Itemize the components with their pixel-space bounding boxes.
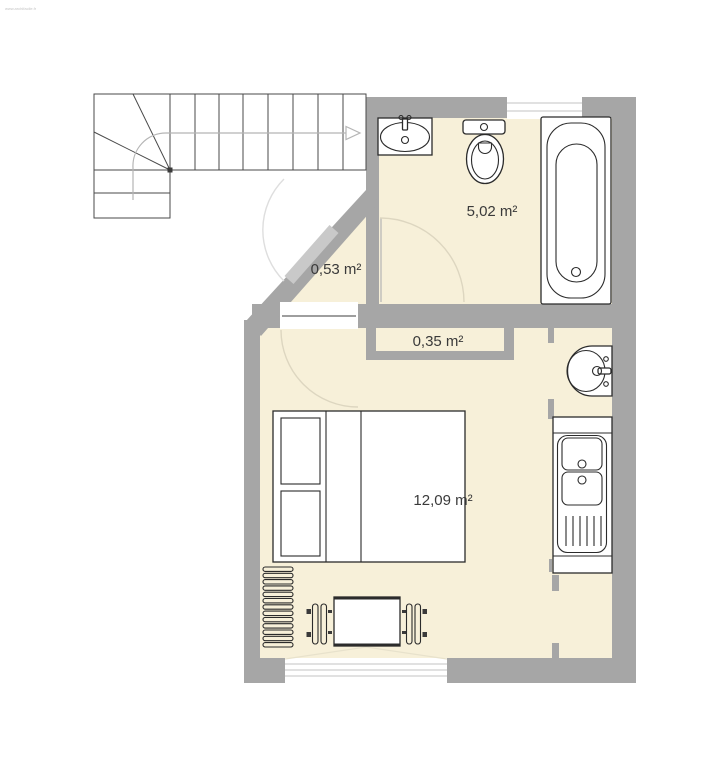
bed [273, 411, 465, 562]
wall-left [244, 320, 260, 683]
wall-stub-corridor-bottom [548, 399, 554, 419]
staircase [94, 94, 366, 218]
wall-top [366, 97, 636, 118]
bathroom-area-label: 5,02 m² [467, 203, 518, 220]
bedroom-area-label: 12,09 m² [413, 492, 472, 509]
entry-area-label: 0,53 m² [311, 261, 362, 278]
table [334, 597, 400, 646]
kitchen-sink-unit [553, 417, 612, 573]
washbasin [567, 346, 612, 396]
watermark-text: www.archifacile.fr [5, 6, 37, 11]
stair-winder-node [168, 168, 173, 173]
wall-stub-corridor-top [548, 328, 554, 343]
bathroom-sink [378, 116, 432, 156]
wall-stub-kitchen-bottom [552, 643, 559, 659]
wall-right [612, 97, 636, 683]
tap-icon [403, 119, 408, 130]
wall-stub-kitchen-top [552, 575, 559, 591]
floor-plan-canvas: 5,02 m² 0,53 m² 0,35 m² 12,09 m² www.arc… [0, 0, 718, 768]
floor-plan: 5,02 m² 0,53 m² 0,35 m² 12,09 m² www.arc… [0, 0, 718, 768]
bathtub [541, 117, 611, 304]
window-top [507, 95, 582, 119]
wall-tick-kitchen [549, 559, 552, 572]
closet-area-label: 0,35 m² [413, 333, 464, 350]
tap-icon [598, 368, 611, 374]
